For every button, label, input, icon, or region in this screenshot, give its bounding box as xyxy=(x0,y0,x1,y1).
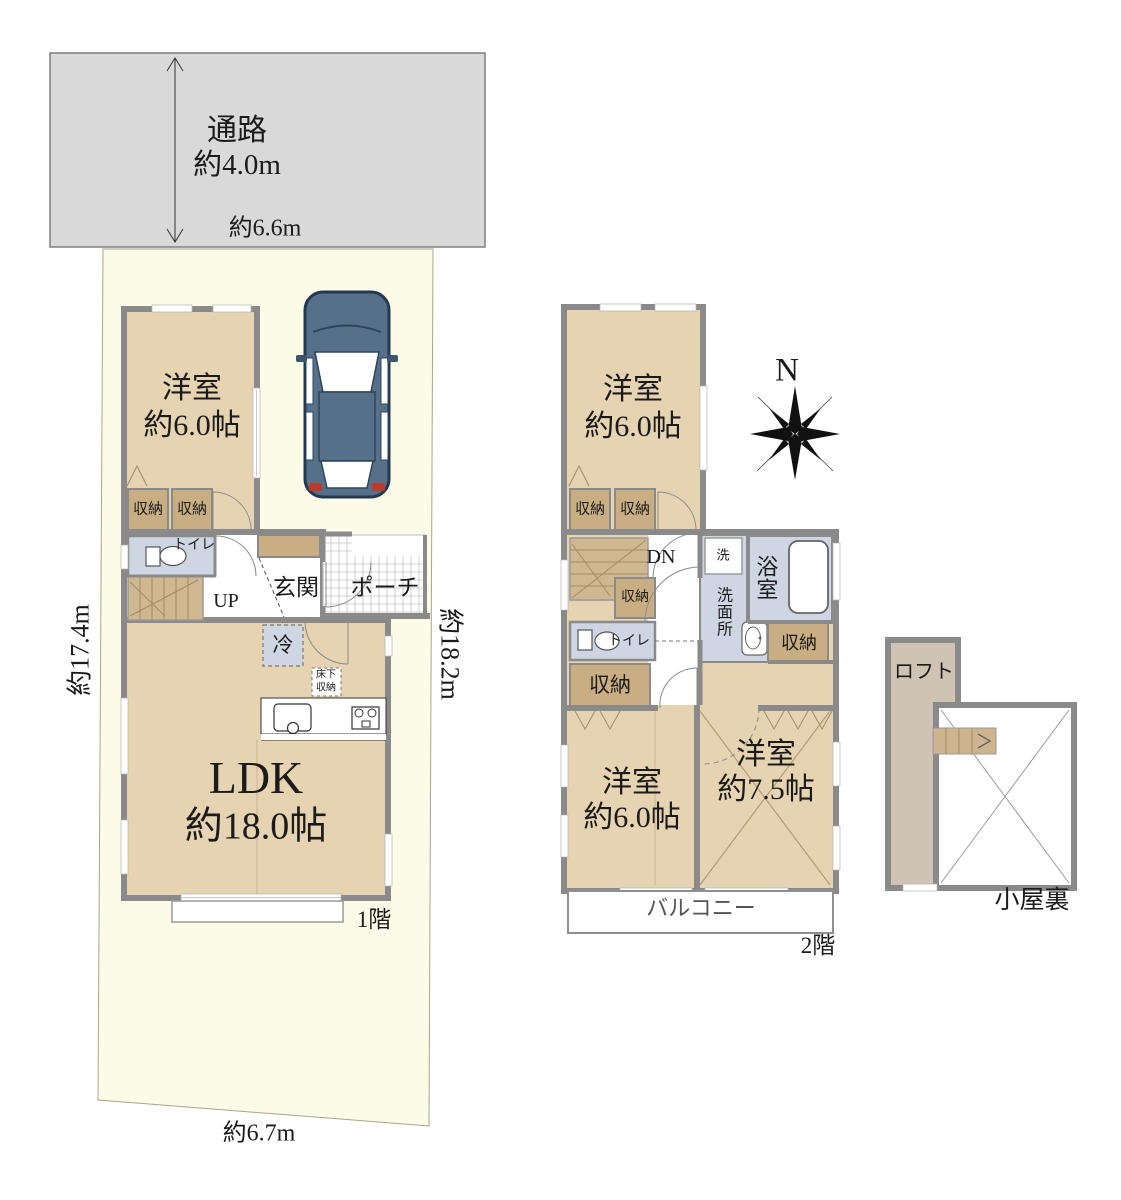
compass-n-label: N xyxy=(775,353,799,390)
f1-underfloor-label: 床下収納 xyxy=(313,670,339,695)
f2-storage-b: 収納 xyxy=(620,502,650,519)
f2-bedroom-sw-name: 洋室 xyxy=(602,766,662,800)
f2-storage-e: 収納 xyxy=(781,633,817,653)
attic-label: 小屋裏 xyxy=(994,887,1069,915)
f2-toilet-label: トイレ xyxy=(608,634,650,650)
site-dim-south: 約6.7m xyxy=(223,1121,296,1148)
f2-bedroom-sw-size: 約6.0帖 xyxy=(583,801,681,835)
floorplan-graphics xyxy=(0,0,1121,1200)
f2-storage-a: 収納 xyxy=(575,502,605,519)
road-frontage: 約6.6m xyxy=(229,216,302,243)
f1-entrance-label: 玄関 xyxy=(273,575,319,601)
f2-washer-label: 洗 xyxy=(716,549,729,564)
f1-ldk-size: 約18.0帖 xyxy=(185,806,328,849)
f1-bedroom-size: 約6.0帖 xyxy=(143,409,241,443)
f1-floor-label: 1階 xyxy=(357,907,392,933)
f2-dn-label: DN xyxy=(647,546,676,568)
car-icon xyxy=(296,292,398,497)
f2-floor-label: 2階 xyxy=(801,933,836,959)
f1-up-label: UP xyxy=(213,590,239,612)
f1-porch-label: ポーチ xyxy=(351,575,420,601)
f2-bedroom-se-name: 洋室 xyxy=(736,738,796,772)
f2-bath-label: 浴室 xyxy=(753,555,778,601)
f2-bedroom-se-size: 約7.5帖 xyxy=(717,773,815,807)
f2-bedroom-n-name: 洋室 xyxy=(603,373,663,407)
f2-storage-d: 収納 xyxy=(589,674,631,698)
road-label: 通路 xyxy=(207,114,267,148)
f2-storage-c: 収納 xyxy=(621,590,649,606)
f1-bedroom-name: 洋室 xyxy=(162,372,222,406)
f2-balcony-label: バルコニー xyxy=(646,897,756,922)
f1-storage-b: 収納 xyxy=(177,502,207,519)
f1-storage-a: 収納 xyxy=(133,502,163,519)
compass-rose-icon xyxy=(750,386,840,480)
f1-ldk-name: LDK xyxy=(209,752,304,804)
road-depth: 約4.0m xyxy=(193,149,281,181)
site-dim-east: 約18.2m xyxy=(435,608,464,700)
site-dim-west: 約17.4m xyxy=(65,604,94,696)
f2-bedroom-n-size: 約6.0帖 xyxy=(584,410,682,444)
f2-washroom-label: 洗面所 xyxy=(713,587,731,638)
f1-fridge-label: 冷 xyxy=(273,634,294,658)
floorplan-canvas: 通路 約4.0m 約6.6m 約17.4m 約18.2m 約6.7m 洋室 約6… xyxy=(0,0,1121,1200)
attic-loft-label: ロフト xyxy=(894,661,954,683)
f1-toilet-label: トイレ xyxy=(173,538,215,554)
